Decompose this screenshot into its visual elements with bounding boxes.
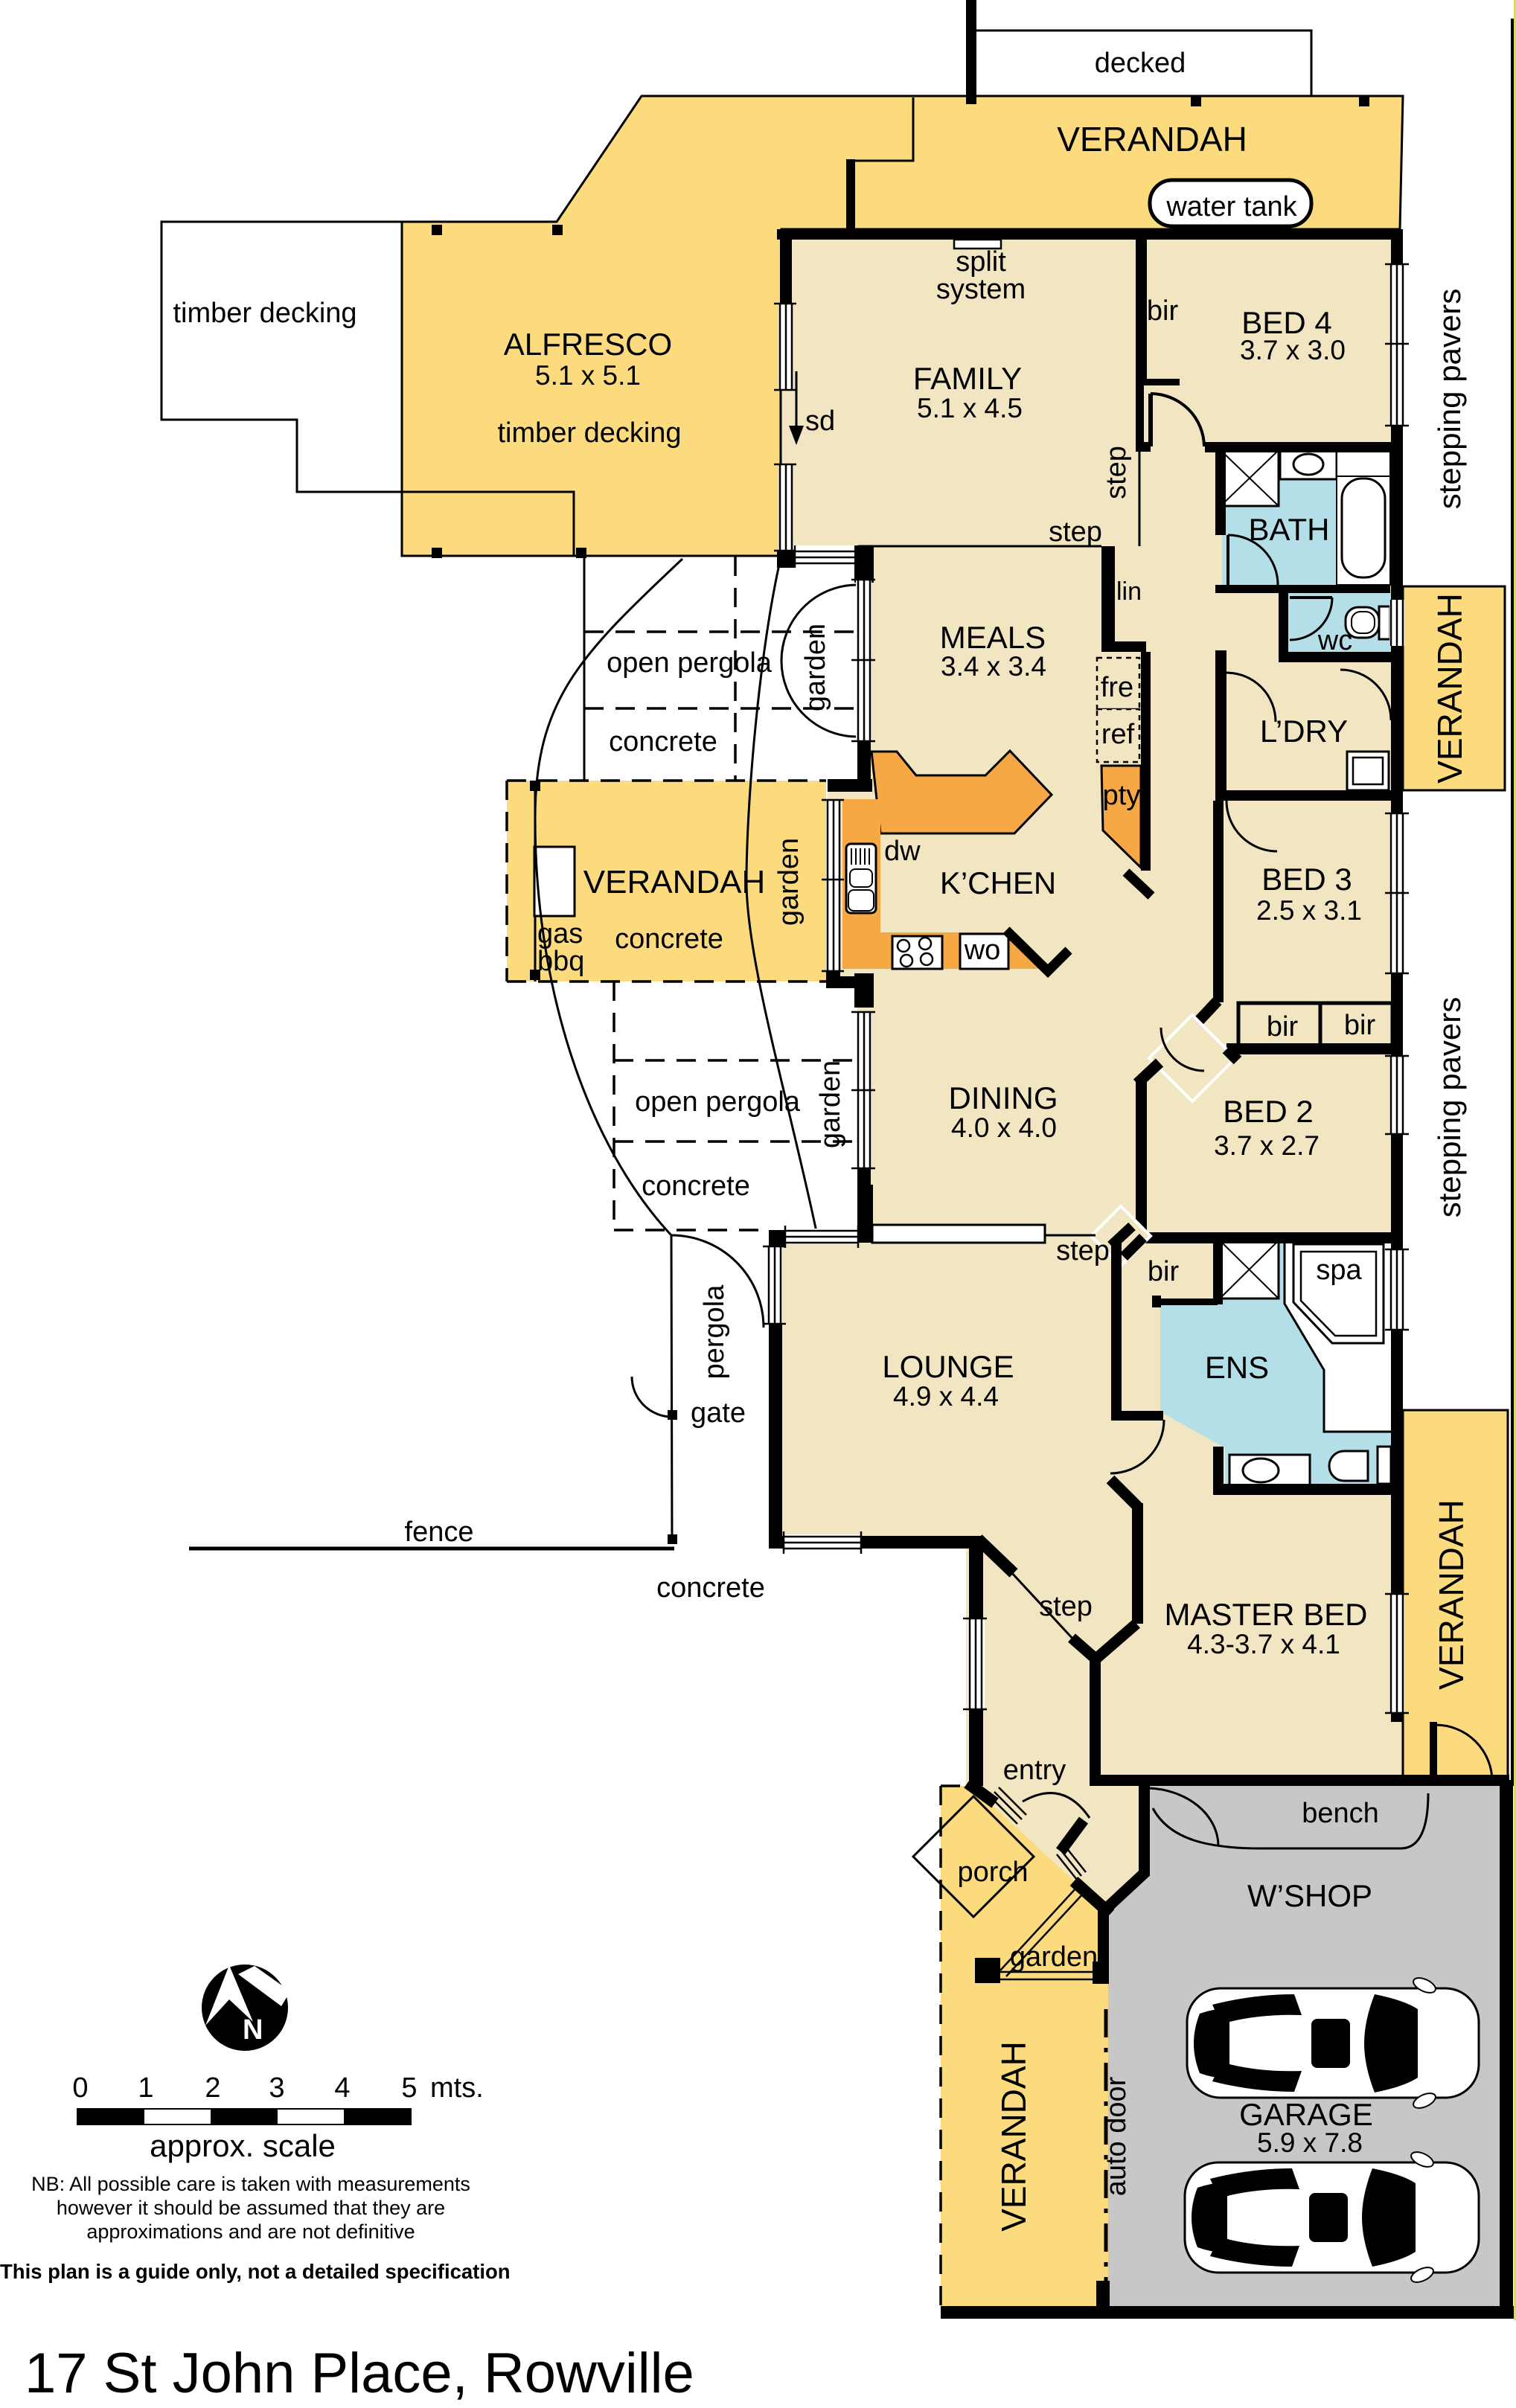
svg-text:ALFRESCO: ALFRESCO <box>504 327 672 362</box>
svg-text:VERANDAH: VERANDAH <box>1057 120 1247 158</box>
svg-text:4: 4 <box>334 2072 350 2104</box>
svg-text:gate: gate <box>691 1397 746 1429</box>
svg-text:system: system <box>936 274 1026 305</box>
svg-text:step: step <box>1049 516 1102 548</box>
svg-text:step: step <box>1101 446 1132 499</box>
svg-text:5.9 x 7.8: 5.9 x 7.8 <box>1257 2127 1363 2158</box>
svg-text:0: 0 <box>72 2072 88 2104</box>
svg-text:VERANDAH: VERANDAH <box>1432 1499 1471 1690</box>
svg-text:lin: lin <box>1116 577 1142 606</box>
svg-text:MEALS: MEALS <box>940 620 1046 655</box>
svg-text:garden: garden <box>800 624 831 711</box>
svg-text:3: 3 <box>269 2072 284 2104</box>
svg-text:3.7 x 3.0: 3.7 x 3.0 <box>1240 335 1346 365</box>
svg-text:VERANDAH: VERANDAH <box>583 864 766 900</box>
svg-text:decked: decked <box>1095 48 1186 79</box>
svg-text:concrete: concrete <box>615 923 723 955</box>
svg-text:wc: wc <box>1317 625 1352 656</box>
svg-text:entry: entry <box>1003 1755 1066 1786</box>
svg-text:3.7 x 2.7: 3.7 x 2.7 <box>1214 1130 1320 1161</box>
svg-text:auto door: auto door <box>1101 2076 1132 2196</box>
svg-text:water tank: water tank <box>1165 191 1297 222</box>
svg-text:timber decking: timber decking <box>173 298 356 329</box>
svg-text:bir: bir <box>1344 1010 1376 1041</box>
svg-text:wo: wo <box>964 935 1001 966</box>
svg-text:fre: fre <box>1101 672 1133 703</box>
svg-text:5: 5 <box>401 2072 417 2104</box>
svg-text:VERANDAH: VERANDAH <box>994 2041 1033 2232</box>
svg-text:4.9 x 4.4: 4.9 x 4.4 <box>893 1381 999 1412</box>
svg-text:however it should be assumed t: however it should be assumed that they a… <box>57 2197 445 2219</box>
svg-text:open pergola: open pergola <box>635 1086 801 1118</box>
svg-text:bbq: bbq <box>537 946 584 977</box>
svg-text:BED 2: BED 2 <box>1223 1094 1313 1129</box>
svg-text:5.1 x 5.1: 5.1 x 5.1 <box>535 360 641 391</box>
svg-text:bir: bir <box>1267 1011 1299 1043</box>
svg-text:GARAGE: GARAGE <box>1239 2097 1373 2132</box>
svg-text:ref: ref <box>1101 719 1135 750</box>
svg-text:This plan is a guide only, not: This plan is a guide only, not a detaile… <box>0 2260 511 2283</box>
svg-text:pty: pty <box>1103 780 1141 811</box>
svg-text:concrete: concrete <box>642 1171 750 1202</box>
svg-text:porch: porch <box>957 1857 1028 1888</box>
svg-text:FAMILY: FAMILY <box>913 361 1022 396</box>
svg-text:step: step <box>1056 1235 1110 1267</box>
svg-text:DINING: DINING <box>949 1080 1058 1115</box>
svg-text:bir: bir <box>1147 295 1179 327</box>
svg-text:17 St John Place, Rowville: 17 St John Place, Rowville <box>25 2342 694 2405</box>
svg-text:concrete: concrete <box>656 1572 765 1604</box>
svg-text:dw: dw <box>884 836 921 867</box>
svg-text:NB: All possible care is take: NB: All possible care is taken with meas… <box>31 2173 470 2195</box>
svg-text:N: N <box>243 2014 263 2046</box>
svg-text:sd: sd <box>805 406 835 437</box>
svg-text:stepping pavers: stepping pavers <box>1432 289 1467 510</box>
svg-text:2: 2 <box>205 2072 220 2104</box>
svg-text:timber decking: timber decking <box>497 417 681 449</box>
svg-text:2.5 x 3.1: 2.5 x 3.1 <box>1256 895 1362 926</box>
svg-text:split: split <box>956 246 1006 278</box>
svg-text:concrete: concrete <box>609 726 717 758</box>
svg-text:stepping pavers: stepping pavers <box>1432 997 1467 1218</box>
svg-text:garden: garden <box>773 838 805 926</box>
svg-text:LOUNGE: LOUNGE <box>882 1349 1014 1384</box>
svg-text:BATH: BATH <box>1249 512 1330 547</box>
svg-text:MASTER BED: MASTER BED <box>1164 1597 1367 1632</box>
svg-text:VERANDAH: VERANDAH <box>1430 593 1469 784</box>
svg-text:bench: bench <box>1302 1798 1379 1829</box>
svg-text:step: step <box>1039 1591 1093 1622</box>
svg-text:BED 3: BED 3 <box>1261 862 1352 897</box>
svg-text:garden: garden <box>815 1060 846 1148</box>
svg-text:fence: fence <box>405 1517 474 1548</box>
svg-text:W’SHOP: W’SHOP <box>1247 1878 1372 1913</box>
svg-text:3.4 x 3.4: 3.4 x 3.4 <box>941 651 1046 682</box>
svg-text:5.1 x 4.5: 5.1 x 4.5 <box>917 393 1023 423</box>
svg-text:K’CHEN: K’CHEN <box>940 865 1056 900</box>
svg-text:bir: bir <box>1148 1256 1180 1287</box>
svg-text:approximations and are not def: approximations and are not definitive <box>86 2220 415 2243</box>
svg-text:spa: spa <box>1316 1255 1362 1286</box>
svg-text:mts.: mts. <box>430 2072 484 2104</box>
svg-text:4.0 x 4.0: 4.0 x 4.0 <box>951 1112 1057 1143</box>
svg-text:L’DRY: L’DRY <box>1260 714 1348 749</box>
svg-text:4.3-3.7 x 4.1: 4.3-3.7 x 4.1 <box>1187 1629 1340 1659</box>
svg-text:garden: garden <box>1010 1941 1098 1973</box>
svg-text:pergola: pergola <box>699 1284 730 1380</box>
svg-text:ENS: ENS <box>1205 1350 1269 1385</box>
svg-text:approx. scale: approx. scale <box>150 2128 336 2163</box>
svg-text:open pergola: open pergola <box>607 647 773 679</box>
svg-text:1: 1 <box>138 2072 153 2104</box>
